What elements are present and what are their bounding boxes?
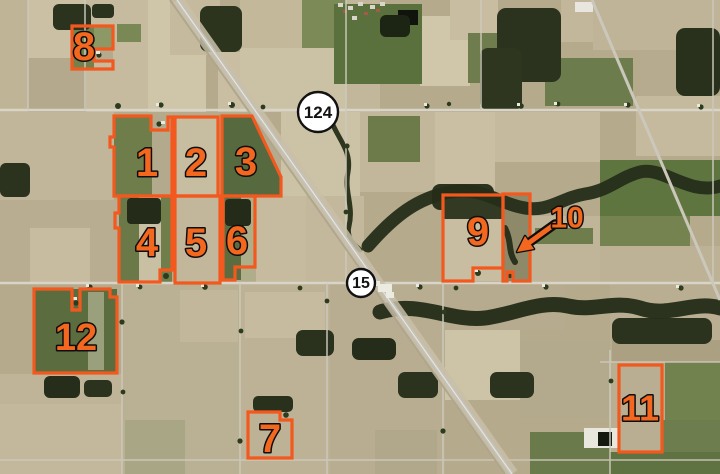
aerial-map: 12345678910111212415: [0, 0, 720, 474]
parcel-label-6[interactable]: 6: [226, 219, 248, 263]
parcel-label-2[interactable]: 2: [185, 141, 207, 185]
parcel-label-12[interactable]: 12: [55, 317, 97, 359]
parcel-label-1[interactable]: 1: [136, 141, 158, 185]
parcel-label-3[interactable]: 3: [235, 140, 257, 184]
parcel-label-5[interactable]: 5: [185, 221, 207, 265]
annotation-overlay: 12345678910111212415: [0, 0, 720, 474]
parcel-label-8[interactable]: 8: [73, 25, 95, 69]
route-shield-15: 15: [347, 269, 375, 297]
parcel-label-10[interactable]: 10: [550, 202, 583, 235]
parcel-label-4[interactable]: 4: [136, 221, 159, 265]
parcel-label-9[interactable]: 9: [467, 210, 489, 254]
route-shield-number: 124: [304, 103, 333, 122]
route-shield-number: 15: [352, 275, 370, 292]
parcel-label-7[interactable]: 7: [259, 417, 281, 461]
route-shield-124: 124: [298, 92, 338, 132]
parcel-label-11[interactable]: 11: [621, 388, 659, 429]
